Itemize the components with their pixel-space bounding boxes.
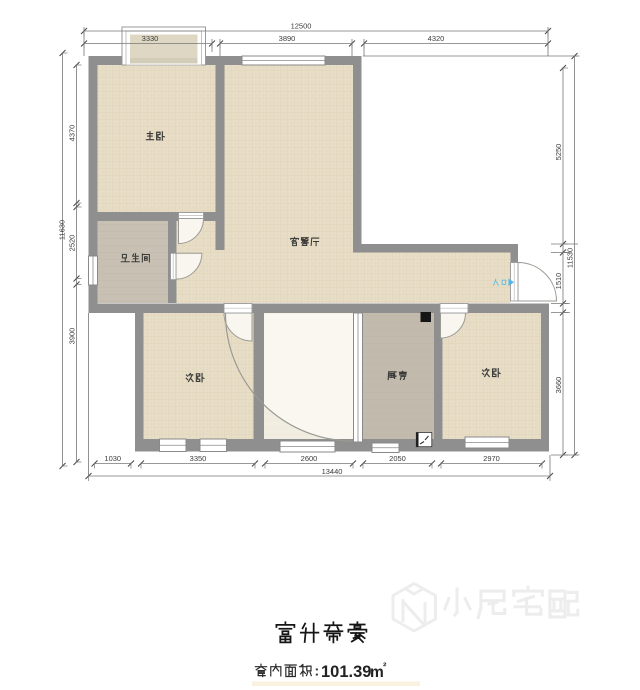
svg-text:²: ² bbox=[383, 661, 387, 673]
svg-text:5250: 5250 bbox=[554, 144, 563, 161]
svg-text:12500: 12500 bbox=[291, 22, 312, 31]
svg-text:3350: 3350 bbox=[190, 454, 207, 463]
svg-text:11530: 11530 bbox=[566, 248, 575, 268]
svg-text:3900: 3900 bbox=[68, 328, 77, 345]
svg-text:13440: 13440 bbox=[322, 467, 343, 476]
svg-text::: : bbox=[315, 663, 320, 679]
svg-text:1510: 1510 bbox=[554, 273, 563, 290]
svg-text:4320: 4320 bbox=[428, 34, 445, 43]
svg-text:1030: 1030 bbox=[104, 454, 121, 463]
svg-text:m: m bbox=[370, 664, 384, 681]
svg-text:2520: 2520 bbox=[68, 235, 77, 252]
svg-text:2970: 2970 bbox=[483, 454, 500, 463]
svg-text:11630: 11630 bbox=[58, 220, 67, 240]
svg-text:3890: 3890 bbox=[279, 34, 296, 43]
svg-text:2600: 2600 bbox=[301, 454, 318, 463]
svg-text:3330: 3330 bbox=[142, 34, 159, 43]
svg-text:2050: 2050 bbox=[389, 454, 406, 463]
svg-text:4370: 4370 bbox=[68, 125, 77, 142]
svg-text:101.39: 101.39 bbox=[321, 663, 371, 681]
svg-text:3660: 3660 bbox=[554, 377, 563, 394]
